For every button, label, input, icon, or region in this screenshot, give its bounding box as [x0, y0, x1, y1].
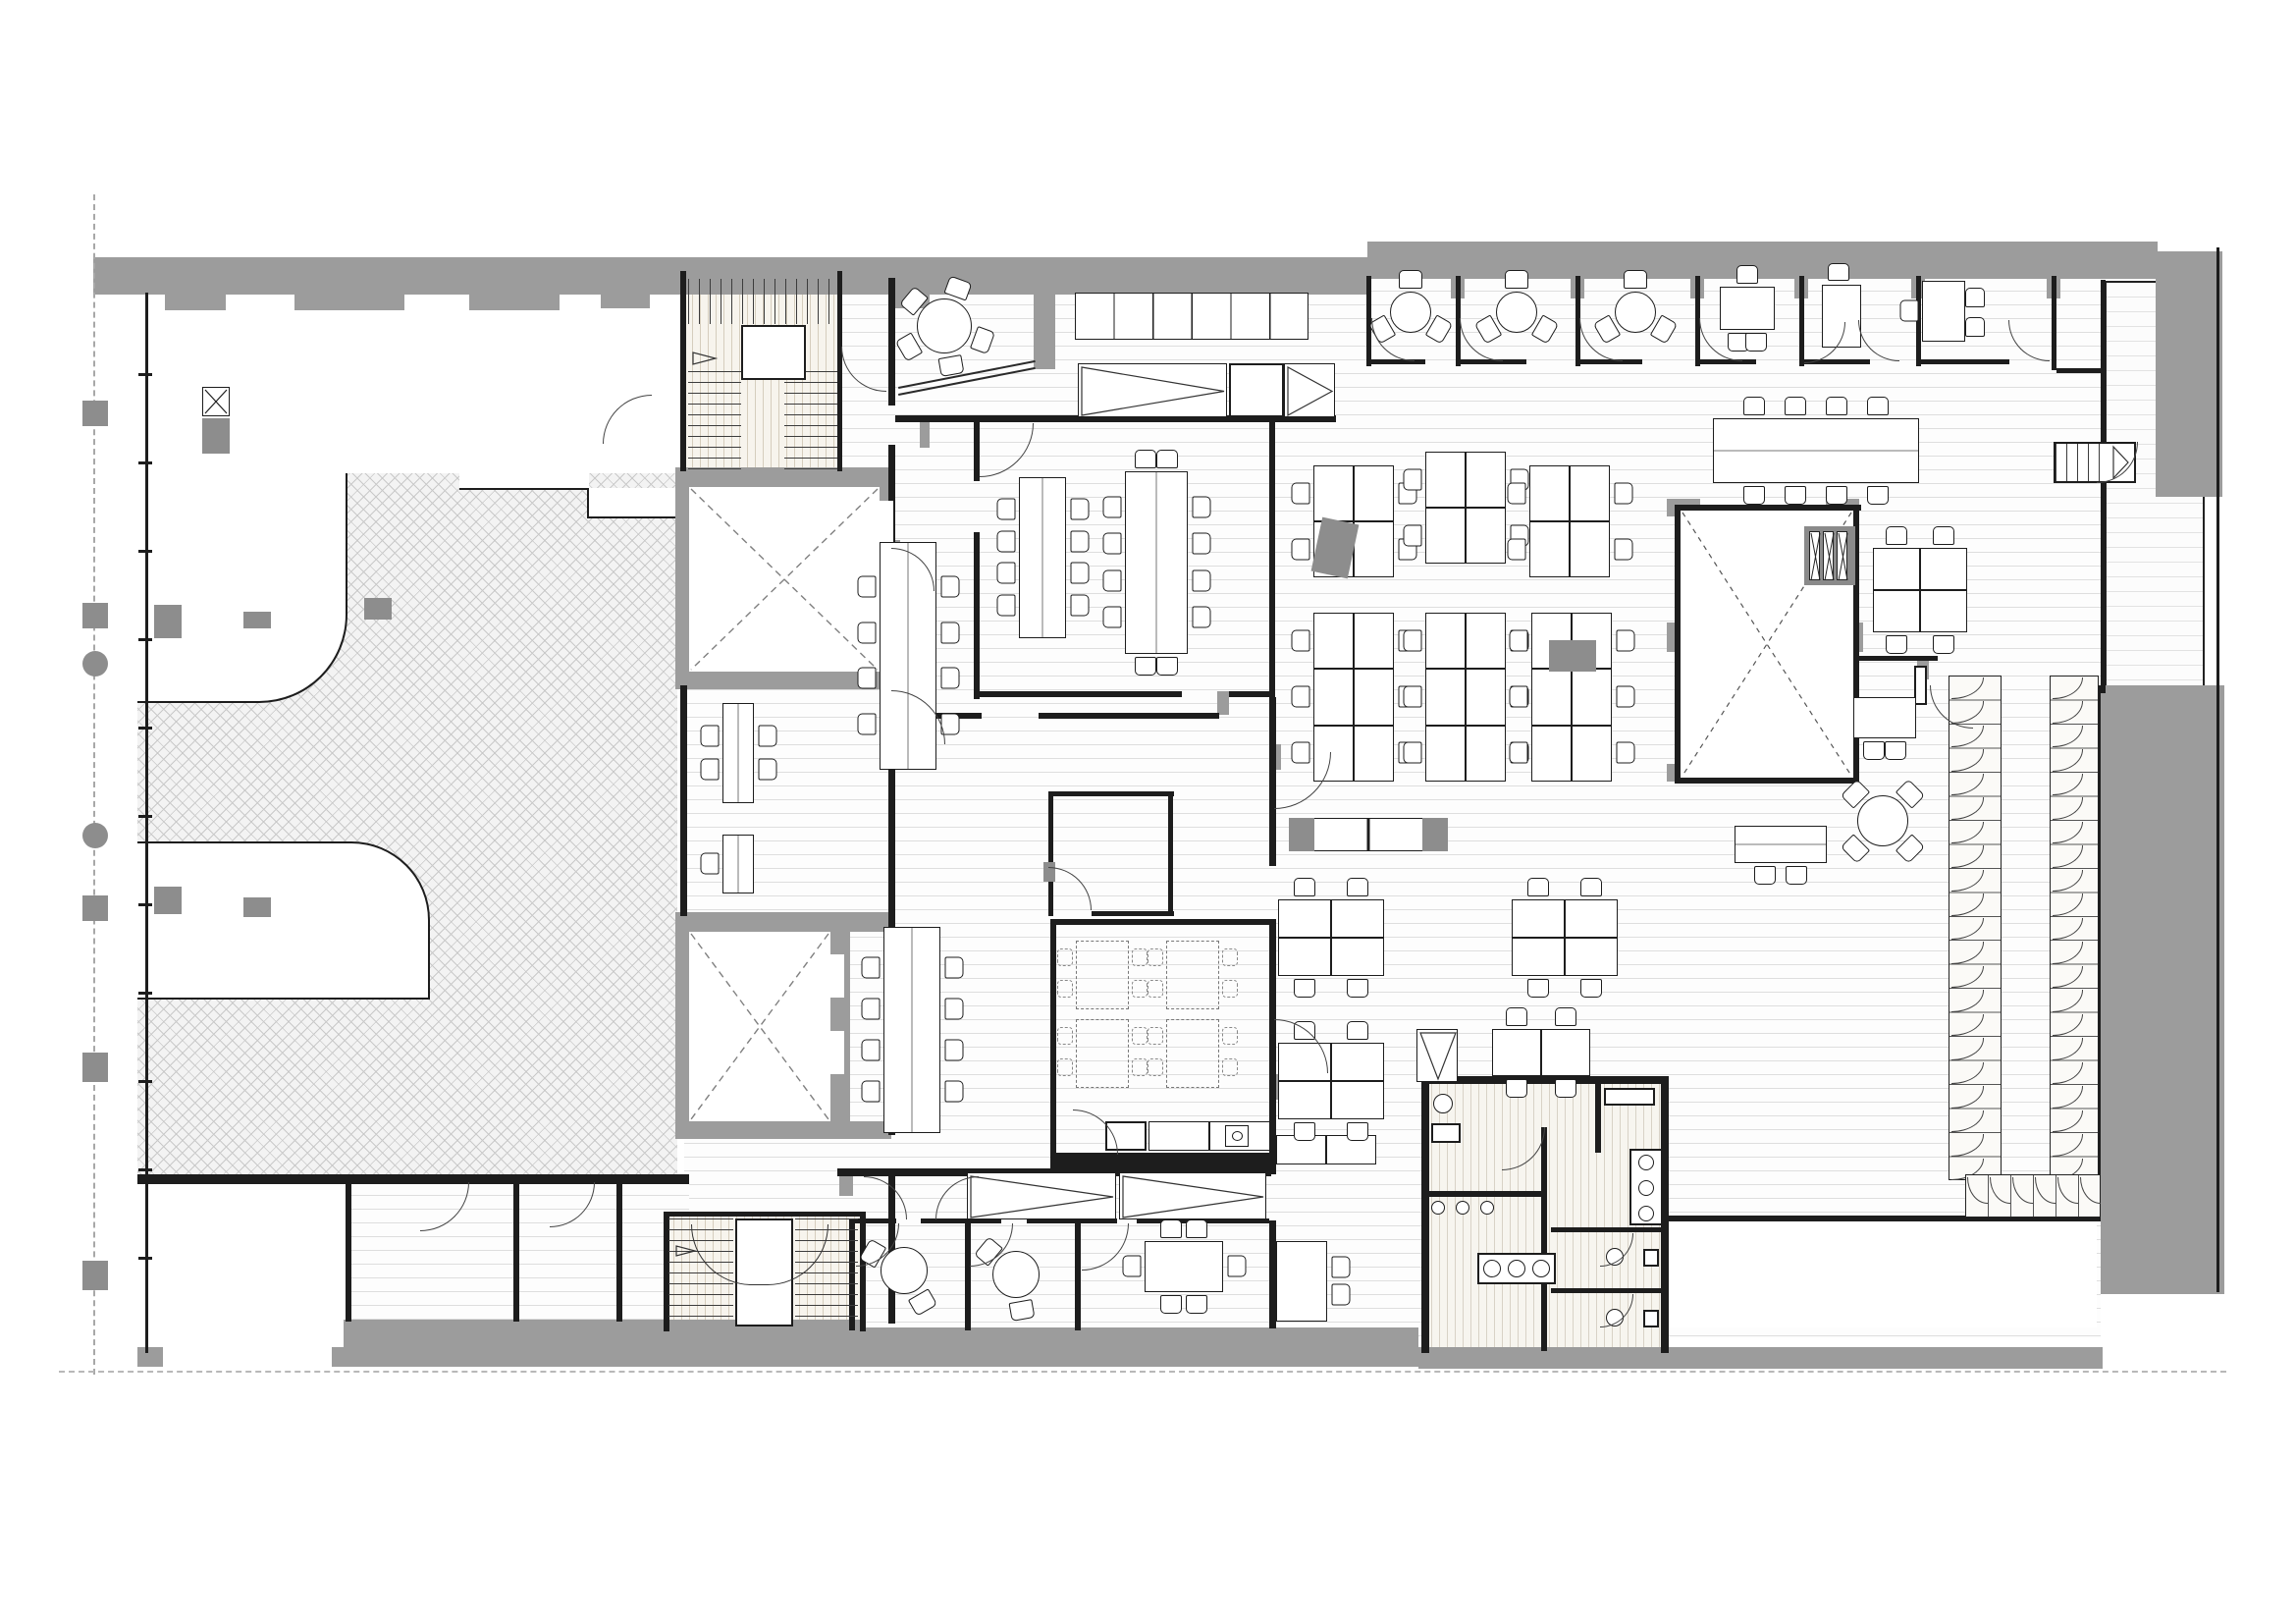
training-chair: [1222, 980, 1238, 998]
urinal: [1456, 1201, 1469, 1215]
wall: [1456, 359, 1526, 364]
chair: [701, 759, 720, 781]
chair: [1886, 526, 1907, 545]
mullion: [138, 903, 152, 906]
duct-shaft: [1284, 363, 1335, 417]
facade-glazing: [145, 293, 148, 1353]
locker-door-arc: [1951, 845, 1984, 867]
wall-foot: [332, 1347, 357, 1367]
chair: [1404, 468, 1422, 490]
locker-row: [2050, 676, 2099, 1180]
workstation-desk: [1425, 508, 1466, 564]
wall: [513, 1182, 519, 1322]
training-table: [1166, 1019, 1219, 1088]
chair: [858, 576, 877, 598]
counter-end: [1422, 818, 1448, 851]
training-chair: [1222, 1058, 1238, 1076]
workstation-desk: [1331, 1043, 1384, 1081]
wall-property-east: [2216, 247, 2219, 1292]
workstation-desk: [1278, 1081, 1331, 1119]
mullion: [138, 550, 152, 553]
storage-cabinets: [1075, 293, 1308, 340]
desk-single: [722, 835, 754, 893]
sink: [1638, 1155, 1654, 1170]
chair: [1527, 878, 1549, 896]
locker-door-arc: [2053, 677, 2083, 699]
wall: [888, 278, 895, 406]
workstation-desk: [1466, 726, 1506, 782]
chair: [1785, 486, 1806, 505]
workstation-desk: [1873, 548, 1920, 590]
lift-cell: [1809, 531, 1820, 580]
shaft-marker: [202, 387, 230, 416]
chair: [945, 1081, 964, 1103]
wall: [1050, 919, 1056, 1161]
training-chair: [1132, 948, 1148, 966]
neighbor-mass-northeast: [2156, 251, 2222, 497]
locker-door-arc: [1951, 870, 1984, 892]
workstation-desk: [1313, 465, 1354, 521]
wall: [1056, 919, 1276, 925]
desk-chair: [1828, 263, 1849, 281]
chair: [1736, 265, 1758, 284]
duct-shaft: [1119, 1172, 1266, 1219]
workstation-desk: [1466, 669, 1506, 725]
terrace-column: [243, 897, 271, 917]
locker-door-arc: [2035, 1177, 2056, 1204]
chair: [1103, 533, 1122, 555]
training-chair: [1222, 948, 1238, 966]
elevator-shaft-1: [689, 487, 880, 672]
sink: [1638, 1180, 1654, 1196]
workstation-desk: [1313, 669, 1354, 725]
locker-door-arc: [2080, 1177, 2101, 1204]
stair-treads: [784, 371, 837, 469]
chair: [1186, 1295, 1207, 1314]
chair: [1071, 530, 1090, 552]
terrace-walkway: [137, 841, 430, 1000]
locker-door-arc: [2053, 774, 2083, 795]
urinal: [1431, 1201, 1445, 1215]
wall: [1421, 1076, 1429, 1353]
locker-door-arc: [2053, 1038, 2083, 1059]
service-lift: [1804, 526, 1855, 585]
locker-door-arc: [2053, 942, 2083, 963]
chair: [941, 576, 960, 598]
chair: [1156, 657, 1178, 676]
wall: [1421, 1191, 1547, 1197]
guest-chair: [1965, 317, 1985, 337]
workstation-desk: [1565, 938, 1618, 976]
chair: [1510, 629, 1528, 651]
workstation-desk: [1492, 1029, 1541, 1076]
chair: [1292, 629, 1310, 651]
meeting-table: [1125, 471, 1188, 654]
workstation-desk: [1529, 521, 1570, 577]
locker-door-arc: [2053, 966, 2083, 988]
locker-door-arc: [1951, 1134, 1984, 1156]
locker-door-arc: [1951, 918, 1984, 940]
training-chair: [1132, 1058, 1148, 1076]
training-chair: [1148, 948, 1163, 966]
exterior-notch: [1669, 1221, 2097, 1327]
chair: [858, 668, 877, 689]
locker-door-arc: [2053, 1086, 2083, 1108]
sink: [1532, 1260, 1550, 1277]
chair: [1292, 538, 1310, 560]
storage-shelf: [1604, 1088, 1655, 1106]
chair: [945, 999, 964, 1020]
elevator-door-slot: [830, 954, 844, 998]
chair: [997, 595, 1016, 617]
chair: [1510, 742, 1528, 764]
wall-bottom-band: [1418, 1347, 2103, 1369]
chair: [1347, 979, 1368, 998]
chair: [862, 957, 881, 979]
wall: [1551, 1288, 1662, 1293]
training-table: [1166, 941, 1219, 1009]
workstation-desk: [1466, 613, 1506, 669]
locker-door-arc: [2053, 1062, 2083, 1084]
mullion: [138, 1168, 152, 1171]
workstation-desk: [1873, 590, 1920, 632]
chair: [997, 530, 1016, 552]
wall: [1092, 911, 1174, 916]
workstation-desk: [1425, 452, 1466, 508]
chair: [1506, 1007, 1527, 1026]
locker-door-arc: [1967, 1177, 1988, 1204]
workstation-desk: [1313, 613, 1354, 669]
locker-door-arc: [1951, 822, 1984, 843]
chair: [1555, 1079, 1576, 1098]
wall-foot: [137, 1347, 163, 1367]
elevator-shaft-2: [689, 932, 830, 1121]
workstation-desk: [1354, 465, 1394, 521]
door-jamb: [1217, 691, 1229, 715]
locker-door-arc: [1951, 1014, 1984, 1036]
chair: [1292, 686, 1310, 708]
chair: [1294, 979, 1315, 998]
workstation-desk: [1331, 899, 1384, 938]
chair: [1103, 497, 1122, 518]
kitchen-counter: [1148, 1121, 1270, 1151]
round-column: [82, 823, 108, 848]
chair: [1404, 742, 1422, 764]
workstation-desk: [1531, 726, 1572, 782]
workstation-desk: [1512, 938, 1565, 976]
chair: [1743, 486, 1765, 505]
lobby-curved-edge: [137, 473, 347, 703]
wall: [1695, 359, 1756, 364]
chair: [1193, 533, 1211, 555]
chair: [1555, 1007, 1576, 1026]
wall: [1541, 1127, 1547, 1351]
locker-door-arc: [2053, 893, 2083, 915]
chair: [1624, 270, 1647, 289]
locker-door-arc: [2053, 918, 2083, 940]
chair: [1160, 1219, 1182, 1238]
round-table: [917, 298, 972, 353]
chair: [1292, 482, 1310, 504]
training-chair: [1057, 1058, 1073, 1076]
chair: [1156, 450, 1178, 468]
locker-door-arc: [2053, 822, 2083, 843]
mullion: [138, 1080, 152, 1083]
chair: [862, 999, 881, 1020]
chair: [1294, 1122, 1315, 1141]
locker-door-arc: [1951, 893, 1984, 915]
round-column: [82, 651, 108, 677]
toilet-tank: [1431, 1123, 1461, 1143]
chair: [1617, 742, 1635, 764]
wall: [1039, 713, 1219, 719]
chair: [862, 1081, 881, 1103]
terrace-column: [243, 612, 271, 628]
mullion: [138, 638, 152, 641]
chair: [945, 1040, 964, 1061]
workstation-desk: [1531, 669, 1572, 725]
locker-door-arc: [2053, 797, 2083, 819]
lift-cell: [1837, 531, 1847, 580]
locker-door-arc: [2012, 1177, 2033, 1204]
toilet-tank: [1643, 1310, 1659, 1327]
wall: [1366, 359, 1425, 364]
workstation-desk: [1541, 1029, 1590, 1076]
chair: [1527, 979, 1549, 998]
workstation-desk: [1425, 669, 1466, 725]
workstation-desk: [1572, 669, 1612, 725]
chair: [1900, 300, 1919, 322]
locker-row: [1965, 1174, 2101, 1218]
chair: [1826, 486, 1847, 505]
workstation-desk: [1354, 521, 1394, 577]
wall: [680, 685, 687, 916]
office-desk: [1853, 697, 1916, 738]
chair: [1506, 1079, 1527, 1098]
chair: [1404, 629, 1422, 651]
duct-shaft: [967, 1172, 1116, 1219]
workstation-desk: [1529, 465, 1570, 521]
chair: [1580, 979, 1602, 998]
wall-pier: [1034, 293, 1055, 369]
urinal: [1480, 1201, 1494, 1215]
chair: [1186, 1219, 1207, 1238]
chair: [1867, 486, 1889, 505]
workstation-desk: [1512, 899, 1565, 938]
floor-plan: [0, 0, 2296, 1624]
locker-door-arc: [2053, 1014, 2083, 1036]
chair: [1160, 1295, 1182, 1314]
column-block: [202, 418, 230, 454]
locker-door-arc: [1951, 774, 1984, 795]
meeting-table: [1019, 477, 1066, 638]
workstation-desk: [1570, 465, 1610, 521]
chair: [1886, 635, 1907, 654]
terrace-notch: [587, 488, 675, 518]
chair: [1885, 741, 1906, 760]
locker-door-arc: [2053, 990, 2083, 1011]
chair: [1193, 497, 1211, 518]
wall: [664, 1212, 866, 1217]
wall-pilaster: [165, 293, 226, 310]
chair: [1123, 1256, 1142, 1277]
chair: [1826, 397, 1847, 415]
chair: [858, 713, 877, 734]
training-table: [1076, 1019, 1129, 1088]
chair: [1617, 629, 1635, 651]
stair-treads: [688, 371, 741, 469]
chair: [1754, 866, 1776, 885]
locker-row: [1949, 676, 2002, 1180]
workstation-desk: [1920, 548, 1967, 590]
facade-post: [82, 895, 108, 921]
training-table: [1076, 941, 1129, 1009]
training-chair: [1057, 948, 1073, 966]
training-chair: [1057, 980, 1073, 998]
locker-door-arc: [1951, 1062, 1984, 1084]
chair: [1743, 397, 1765, 415]
wall: [974, 691, 1182, 697]
locker-door-arc: [1990, 1177, 2010, 1204]
sidewalk-line: [59, 1371, 2226, 1373]
locker-door-arc: [2053, 1110, 2083, 1132]
chair: [1785, 397, 1806, 415]
stair-landing: [741, 325, 806, 380]
workstation-desk: [1570, 521, 1610, 577]
elevator-door-slot: [830, 1031, 844, 1074]
round-table: [1857, 795, 1908, 846]
wall: [974, 532, 980, 699]
training-chair: [1148, 1027, 1163, 1045]
chair: [701, 726, 720, 747]
chair: [1404, 686, 1422, 708]
wall-bottom-band: [866, 1327, 1418, 1367]
chair: [1332, 1257, 1351, 1278]
manager-desk: [1922, 281, 1965, 342]
chair: [1294, 878, 1315, 896]
locker-door-arc: [1951, 966, 1984, 988]
chair: [1193, 606, 1211, 627]
training-chair: [1057, 1027, 1073, 1045]
stair-direction-arrow: [673, 1243, 699, 1259]
workstation-desk: [1278, 938, 1331, 976]
facade-post: [82, 1261, 108, 1290]
chair: [759, 759, 777, 781]
wall: [1595, 1076, 1601, 1153]
mullion: [138, 1257, 152, 1260]
workstation-desk: [1354, 613, 1394, 669]
chair: [945, 957, 964, 979]
locker-door-arc: [2053, 701, 2083, 723]
chair: [1103, 606, 1122, 627]
chair: [1404, 524, 1422, 546]
locker-door-arc: [1951, 990, 1984, 1011]
chair: [1135, 450, 1156, 468]
workstation-desk: [1425, 613, 1466, 669]
chair: [997, 498, 1016, 519]
chair: [1071, 498, 1090, 519]
lift-cell: [1823, 531, 1834, 580]
chair: [1228, 1256, 1247, 1277]
chair: [1347, 1021, 1368, 1040]
chair: [1933, 635, 1954, 654]
wall: [1575, 359, 1642, 364]
chair: [941, 622, 960, 643]
wall: [1269, 418, 1275, 699]
workstation-desk: [1466, 452, 1506, 508]
duct-shaft: [1416, 1029, 1458, 1082]
locker-door-arc: [2053, 845, 2083, 867]
locker-door-arc: [2053, 1134, 2083, 1156]
round-table: [881, 1247, 928, 1294]
chair: [1332, 1283, 1351, 1305]
stair-direction-arrow: [690, 350, 720, 367]
workstation-desk: [1354, 669, 1394, 725]
chair: [1867, 397, 1889, 415]
bench-desk: [883, 927, 940, 1133]
kitchen-sink: [1225, 1125, 1249, 1147]
chair: [1508, 538, 1526, 560]
locker-door-arc: [1951, 1110, 1984, 1132]
workstation-desk: [1466, 508, 1506, 564]
wall: [1551, 1227, 1662, 1232]
mullion: [138, 815, 152, 818]
wall-bottom-band: [344, 1320, 866, 1367]
training-chair: [1148, 1058, 1163, 1076]
chair: [858, 622, 877, 643]
elevator2-wall: [675, 912, 689, 1139]
workstation-desk: [1425, 726, 1466, 782]
chair: [1745, 333, 1767, 352]
sink: [1483, 1260, 1501, 1277]
conference-table: [1713, 418, 1919, 483]
mullion: [138, 373, 152, 376]
terrace-column: [364, 598, 392, 620]
wall: [1168, 791, 1173, 916]
neighbor-mass-east: [2101, 685, 2224, 1294]
chair: [1347, 1122, 1368, 1141]
stair-treads: [688, 279, 835, 324]
duct-closet: [1229, 363, 1284, 417]
wall: [1229, 691, 1275, 697]
mullion: [138, 727, 152, 730]
wall-terrace-south: [137, 1174, 689, 1184]
wall: [2052, 276, 2056, 370]
wall: [1916, 359, 2009, 364]
chair: [1135, 657, 1156, 676]
wall: [2101, 280, 2106, 693]
chair: [1193, 569, 1211, 591]
locker-door-arc: [1951, 726, 1984, 747]
locker-door-arc: [1951, 749, 1984, 771]
mullion: [138, 461, 152, 464]
chair: [1347, 878, 1368, 896]
wall: [1075, 1218, 1081, 1330]
desk-pair: [722, 703, 754, 803]
chair: [759, 726, 777, 747]
training-chair: [1222, 1027, 1238, 1045]
meeting-table-small: [1145, 1241, 1223, 1292]
chair: [1399, 270, 1422, 289]
wall: [837, 271, 842, 471]
workstation-desk: [1331, 938, 1384, 976]
chair: [1071, 595, 1090, 617]
workstation-desk: [1331, 1081, 1384, 1119]
training-chair: [1148, 980, 1163, 998]
locker-door-arc: [1951, 942, 1984, 963]
wall: [1048, 791, 1174, 796]
toilet-tank: [1643, 1249, 1659, 1267]
